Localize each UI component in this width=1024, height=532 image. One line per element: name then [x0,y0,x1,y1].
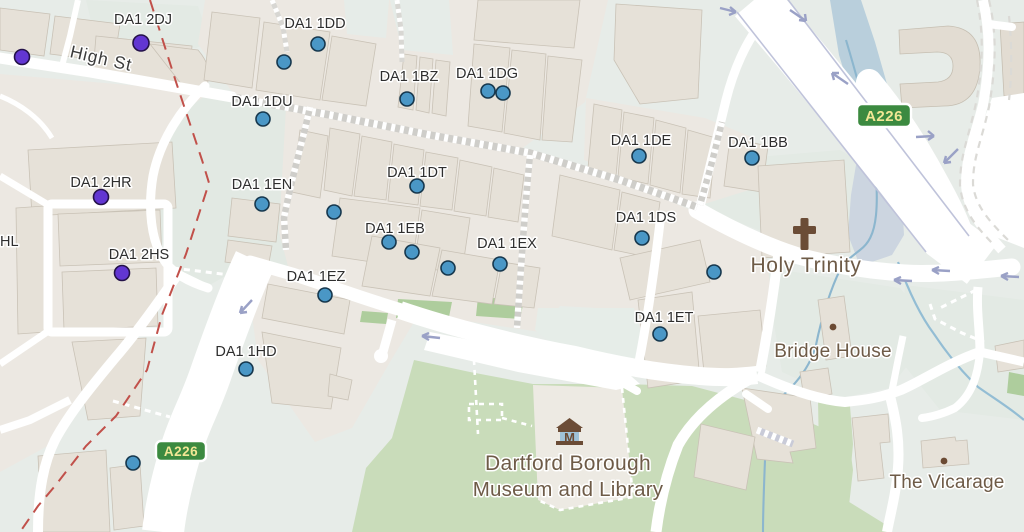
svg-text:DA1 1EZ: DA1 1EZ [287,269,346,285]
svg-text:Holy Trinity: Holy Trinity [750,254,861,277]
svg-text:DA1 2DJ: DA1 2DJ [114,12,172,28]
svg-text:DA1 2HR: DA1 2HR [70,175,131,191]
svg-text:DA1 1ET: DA1 1ET [635,310,694,326]
svg-text:A226: A226 [164,444,198,459]
svg-text:DA1 1DS: DA1 1DS [616,210,676,226]
svg-text:DA1 2HS: DA1 2HS [109,247,169,263]
svg-text:DA1 1HD: DA1 1HD [215,344,276,360]
svg-text:DA1 1DT: DA1 1DT [387,165,447,181]
svg-text:Museum and Library: Museum and Library [473,478,664,501]
svg-text:DA1 1BB: DA1 1BB [728,135,788,151]
svg-text:A226: A226 [865,108,903,125]
svg-text:Bridge House: Bridge House [774,341,892,362]
svg-text:DA1 1BZ: DA1 1BZ [380,69,439,85]
svg-text:DA1 1DG: DA1 1DG [456,66,518,82]
svg-text:DA1 1EB: DA1 1EB [365,221,425,237]
svg-text:The Vicarage: The Vicarage [889,472,1004,493]
svg-text:DA1 1EN: DA1 1EN [232,177,292,193]
svg-text:DA1 1DE: DA1 1DE [611,133,672,149]
svg-text:HL: HL [0,234,19,250]
svg-text:DA1 1EX: DA1 1EX [477,236,537,252]
svg-text:DA1 1DU: DA1 1DU [231,94,292,110]
svg-text:DA1 1DD: DA1 1DD [284,16,345,32]
svg-text:Dartford Borough: Dartford Borough [485,452,651,475]
